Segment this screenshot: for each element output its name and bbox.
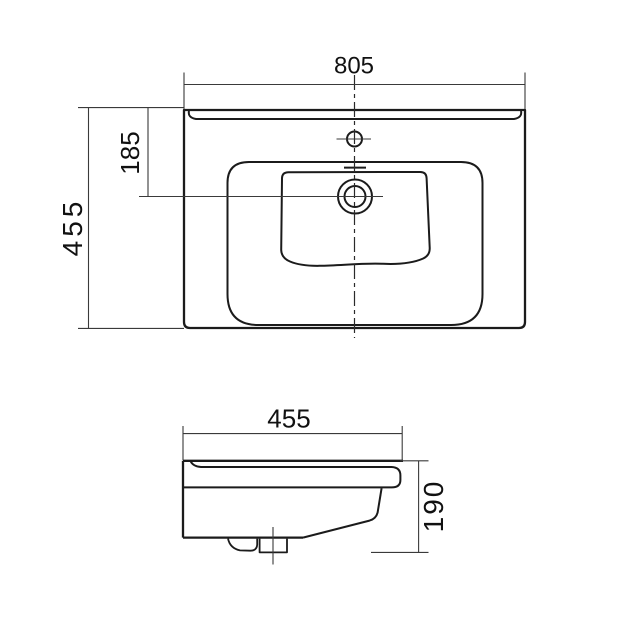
dim-185-label: 185 — [115, 131, 145, 174]
washbasin-technical-drawing: 805 455 185 — [0, 0, 640, 640]
dim-455s-label: 455 — [267, 404, 310, 434]
dim-190-label: 190 — [418, 480, 449, 533]
drain-recess — [228, 539, 257, 551]
dimension-190: 190 — [371, 461, 449, 553]
side-view: 455 190 — [183, 404, 449, 565]
dimension-455-side-view: 455 — [183, 404, 402, 461]
dimension-185: 185 — [115, 108, 383, 197]
dim-805-label: 805 — [334, 53, 374, 80]
washbasin-technical-drawing-page: 805 455 185 — [0, 0, 640, 640]
dim-455-label: 455 — [57, 198, 88, 257]
top-view: 805 455 185 — [57, 53, 525, 339]
side-back-slope — [303, 488, 382, 537]
side-rim-lip — [184, 461, 401, 487]
